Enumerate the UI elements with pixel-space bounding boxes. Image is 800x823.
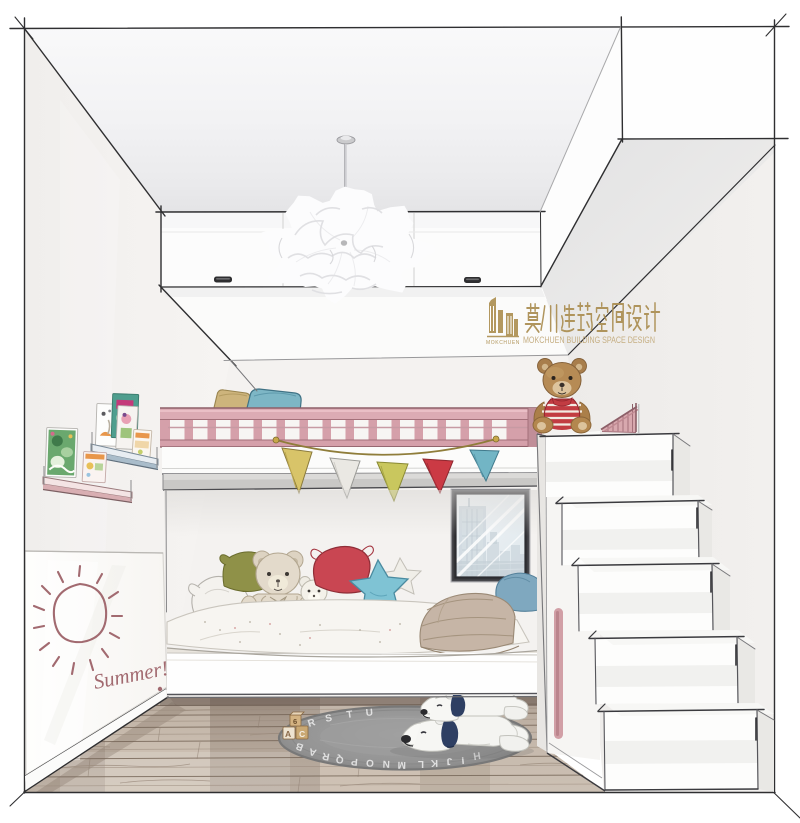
svg-text:P: P (350, 755, 358, 767)
svg-text:U: U (365, 707, 373, 719)
svg-text:C: C (299, 729, 305, 739)
svg-text:M: M (398, 759, 407, 770)
svg-text:O: O (366, 757, 375, 768)
svg-text:N: N (382, 758, 390, 769)
svg-text:6: 6 (293, 717, 297, 726)
svg-text:MOKCHUEN BUILDING SPACE DESIGN: MOKCHUEN BUILDING SPACE DESIGN (523, 335, 655, 345)
svg-text:K: K (430, 757, 438, 768)
svg-text:A: A (285, 729, 291, 739)
svg-text:MOKCHUEN: MOKCHUEN (486, 340, 520, 346)
svg-text:Q: Q (335, 753, 344, 765)
svg-text:L: L (418, 758, 424, 769)
